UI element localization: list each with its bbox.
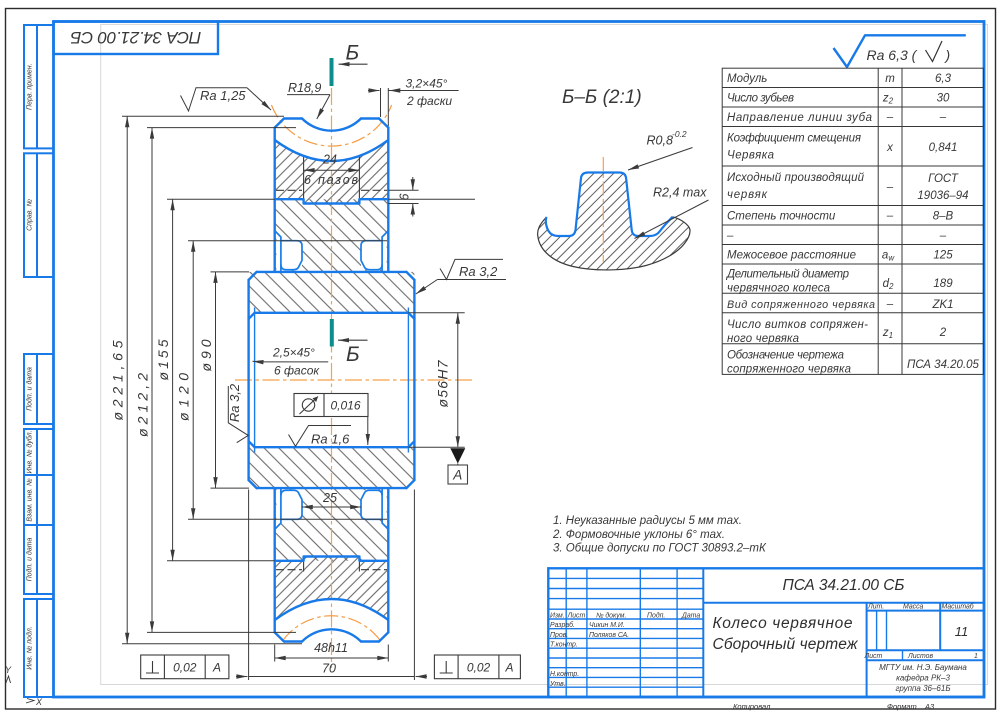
svg-text:11: 11 bbox=[955, 624, 969, 639]
svg-text:Инв. № дубл.: Инв. № дубл. bbox=[26, 430, 34, 473]
svg-text:Т.контр.: Т.контр. bbox=[550, 642, 578, 649]
svg-text:8–В: 8–В bbox=[933, 211, 954, 223]
svg-text:): ) bbox=[944, 47, 951, 63]
svg-text:ZK1: ZK1 bbox=[931, 299, 953, 311]
svg-text:Ra 3,2: Ra 3,2 bbox=[459, 264, 498, 279]
svg-text:Число зубьев: Число зубьев bbox=[727, 93, 794, 105]
svg-text:6 фасок: 6 фасок bbox=[274, 364, 320, 378]
svg-text:Число витков сопряжен-: Число витков сопряжен- bbox=[727, 319, 868, 331]
svg-text:Копировал: Копировал bbox=[733, 702, 771, 711]
svg-text:2,5×45°: 2,5×45° bbox=[272, 346, 315, 360]
svg-text:А: А bbox=[452, 468, 462, 483]
svg-text:ø212,2: ø212,2 bbox=[135, 373, 151, 437]
svg-text:Подп. и дата: Подп. и дата bbox=[26, 367, 34, 411]
svg-text:Дата: Дата bbox=[681, 613, 700, 620]
svg-text:группа 36–61Б: группа 36–61Б bbox=[895, 684, 950, 693]
svg-text:z1: z1 bbox=[882, 327, 893, 340]
svg-text:Изм.: Изм. bbox=[550, 613, 565, 620]
svg-text:30: 30 bbox=[937, 93, 950, 105]
svg-text:–: – bbox=[939, 230, 947, 242]
svg-text:R18,9: R18,9 bbox=[288, 81, 321, 95]
svg-text:x: x bbox=[886, 142, 894, 154]
svg-text:сопряженного червяка: сопряженного червяка bbox=[727, 364, 851, 376]
svg-text:Ra 6,3 (: Ra 6,3 ( bbox=[867, 47, 918, 63]
svg-text:ø120: ø120 bbox=[176, 373, 192, 421]
svg-text:Колесо червячное: Колесо червячное bbox=[713, 615, 853, 632]
svg-text:Модуль: Модуль bbox=[727, 73, 767, 85]
svg-text:ø90: ø90 bbox=[198, 339, 214, 371]
svg-text:кафедра РК–3: кафедра РК–3 bbox=[896, 674, 950, 683]
svg-text:ø221,65: ø221,65 bbox=[110, 340, 126, 420]
svg-text:№ докум.: № докум. bbox=[596, 612, 626, 620]
svg-text:МГТУ им. Н.Э. Баумана: МГТУ им. Н.Э. Баумана bbox=[879, 663, 967, 672]
svg-text:24: 24 bbox=[322, 153, 337, 167]
svg-text:А3: А3 bbox=[924, 702, 935, 711]
svg-text:Пров.: Пров. bbox=[550, 632, 568, 639]
svg-text:2: 2 bbox=[939, 327, 947, 339]
svg-text:-0.2: -0.2 bbox=[672, 129, 687, 139]
svg-text:Масса: Масса bbox=[903, 604, 924, 611]
svg-text:ного червяка: ного червяка bbox=[727, 333, 799, 345]
svg-text:0,841: 0,841 bbox=[929, 142, 958, 154]
svg-text:Поляков СА.: Поляков СА. bbox=[589, 632, 629, 639]
svg-text:189: 189 bbox=[933, 278, 953, 290]
svg-text:ø155: ø155 bbox=[155, 339, 171, 380]
svg-text:ГОСТ: ГОСТ bbox=[928, 173, 959, 185]
svg-text:Червяка: Червяка bbox=[727, 150, 774, 162]
svg-text:Формат: Формат bbox=[887, 702, 917, 711]
svg-text:Сборочный чертеж: Сборочный чертеж bbox=[713, 636, 859, 653]
svg-text:R0,8: R0,8 bbox=[647, 134, 673, 148]
svg-text:70: 70 bbox=[322, 662, 336, 676]
svg-text:0,02: 0,02 bbox=[173, 661, 197, 675]
svg-text:ПСА 34.21.00 СБ: ПСА 34.21.00 СБ bbox=[783, 577, 905, 594]
svg-text:125: 125 bbox=[933, 250, 953, 262]
svg-text:Инв. № подл.: Инв. № подл. bbox=[26, 626, 34, 669]
svg-text:Перв. примен.: Перв. примен. bbox=[27, 63, 34, 110]
svg-text:1. Неуказанные радиусы 5 мм ma: 1. Неуказанные радиусы 5 мм max. bbox=[553, 515, 742, 527]
svg-text:Справ. №: Справ. № bbox=[27, 199, 34, 231]
svg-text:6,3: 6,3 bbox=[935, 73, 952, 85]
svg-text:Ra 1,6: Ra 1,6 bbox=[311, 432, 350, 447]
svg-text:ø56H7: ø56H7 bbox=[435, 359, 451, 407]
svg-text:Подп.: Подп. bbox=[647, 612, 665, 620]
svg-text:–: – bbox=[726, 230, 734, 242]
svg-text:–: – bbox=[886, 299, 894, 311]
svg-text:Лист: Лист bbox=[864, 653, 883, 660]
svg-text:Вид сопряженного червяка: Вид сопряженного червяка bbox=[727, 299, 875, 311]
svg-text:–: – bbox=[886, 182, 894, 194]
svg-text:–: – bbox=[939, 112, 947, 124]
svg-text:Б–Б (2:1): Б–Б (2:1) bbox=[562, 87, 642, 108]
svg-text:Б: Б bbox=[346, 343, 360, 366]
svg-text:aw: aw bbox=[882, 250, 895, 263]
svg-text:ПСА 34.20.05: ПСА 34.20.05 bbox=[907, 359, 979, 371]
svg-text:R2,4 max: R2,4 max bbox=[653, 186, 707, 200]
svg-text:Делительный диаметр: Делительный диаметр bbox=[725, 269, 850, 281]
svg-text:19036–94: 19036–94 bbox=[917, 190, 968, 202]
svg-text:Разраб.: Разраб. bbox=[550, 621, 575, 629]
svg-text:А: А bbox=[504, 661, 513, 675]
svg-text:Коэффициент смещения: Коэффициент смещения bbox=[727, 133, 861, 145]
svg-text:d2: d2 bbox=[883, 278, 894, 291]
svg-text:Обозначение чертежа: Обозначение чертежа bbox=[727, 350, 844, 362]
svg-text:Y: Y bbox=[5, 665, 12, 675]
svg-text:Ra 3,2: Ra 3,2 bbox=[227, 383, 242, 422]
svg-text:червяк: червяк bbox=[727, 189, 768, 201]
svg-text:2. Формовочные уклоны 6° max.: 2. Формовочные уклоны 6° max. bbox=[552, 529, 725, 541]
svg-text:3,2×45°: 3,2×45° bbox=[406, 77, 448, 91]
svg-text:48h11: 48h11 bbox=[314, 641, 348, 655]
svg-text:Чикин М.И.: Чикин М.И. bbox=[589, 622, 625, 629]
svg-text:m: m bbox=[885, 73, 895, 85]
svg-text:0,02: 0,02 bbox=[467, 661, 491, 675]
svg-text:z2: z2 bbox=[882, 93, 894, 106]
svg-text:Утв.: Утв. bbox=[549, 681, 566, 688]
svg-text:ПСА 34.21.00 СБ: ПСА 34.21.00 СБ bbox=[70, 28, 201, 47]
svg-text:Взам. инв. №: Взам. инв. № bbox=[27, 478, 34, 522]
svg-text:Ra 1,25: Ra 1,25 bbox=[200, 88, 246, 103]
svg-text:Степень точности: Степень точности bbox=[727, 211, 836, 223]
svg-text:Масштаб: Масштаб bbox=[942, 603, 975, 611]
svg-text:X: X bbox=[35, 697, 43, 707]
svg-text:Н.контр.: Н.контр. bbox=[550, 671, 579, 678]
svg-text:Лит.: Лит. bbox=[867, 604, 884, 611]
svg-text:2 фаски: 2 фаски bbox=[406, 94, 452, 108]
svg-text:Лист: Лист bbox=[567, 613, 586, 620]
svg-text:–: – bbox=[886, 112, 894, 124]
svg-text:3. Общие допуски по ГОСТ 30893: 3. Общие допуски по ГОСТ 30893.2–mК bbox=[553, 543, 767, 555]
svg-text:Листов: Листов bbox=[907, 653, 933, 660]
svg-text:Исходный производящий: Исходный производящий bbox=[727, 172, 865, 184]
svg-text:Подп. и дата: Подп. и дата bbox=[26, 537, 34, 581]
svg-text:Направление линии зуба: Направление линии зуба bbox=[727, 112, 872, 124]
svg-text:червячного колеса: червячного колеса bbox=[727, 283, 830, 295]
svg-text:25: 25 bbox=[322, 491, 337, 505]
svg-text:1: 1 bbox=[974, 653, 978, 660]
svg-text:А: А bbox=[212, 661, 221, 675]
svg-text:Межосевое расстояние: Межосевое расстояние bbox=[727, 250, 856, 262]
svg-text:Б: Б bbox=[346, 42, 360, 65]
svg-text:0,016: 0,016 bbox=[330, 399, 360, 413]
svg-text:6: 6 bbox=[398, 193, 412, 200]
svg-text:–: – bbox=[886, 210, 894, 222]
